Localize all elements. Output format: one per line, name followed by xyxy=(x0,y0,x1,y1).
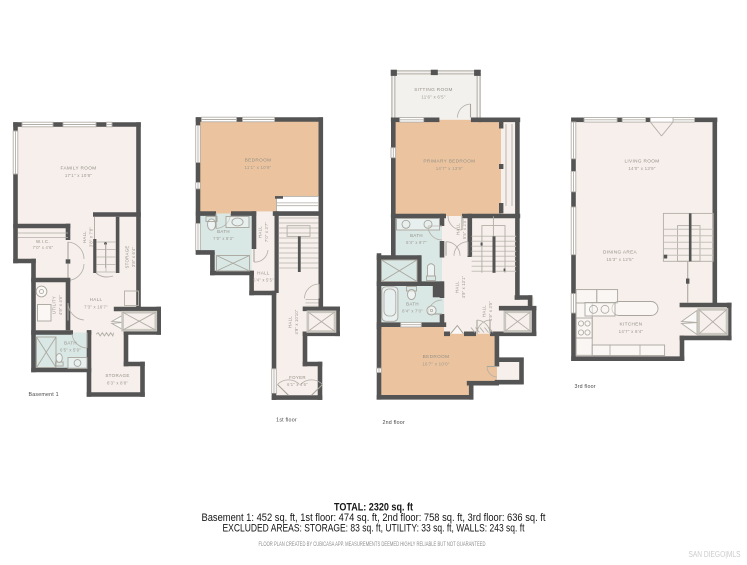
svg-text:BATH: BATH xyxy=(64,341,77,346)
svg-text:16'7" x 10'0": 16'7" x 10'0" xyxy=(422,362,450,367)
svg-text:BEDROOM: BEDROOM xyxy=(423,354,450,359)
svg-text:HALL: HALL xyxy=(90,297,103,302)
svg-text:HALL: HALL xyxy=(258,226,263,238)
svg-text:4'9" x 4'6": 4'9" x 4'6" xyxy=(58,295,63,315)
svg-text:7'0" x 4'6": 7'0" x 4'6" xyxy=(33,245,54,250)
svg-text:8'4" x 7'0": 8'4" x 7'0" xyxy=(402,308,423,313)
svg-text:7'3" x 16'7": 7'3" x 16'7" xyxy=(84,304,108,309)
svg-text:KITCHEN: KITCHEN xyxy=(619,322,642,327)
svg-text:FAMILY ROOM: FAMILY ROOM xyxy=(61,166,97,171)
svg-text:LIVING ROOM: LIVING ROOM xyxy=(624,159,659,164)
svg-text:7'0" x 3'7": 7'0" x 3'7" xyxy=(264,222,269,242)
svg-text:11'1" x 10'9": 11'1" x 10'9" xyxy=(244,165,271,170)
svg-text:4'9" x 10'10": 4'9" x 10'10" xyxy=(294,309,299,334)
svg-text:5'4" x 5'5": 5'4" x 5'5" xyxy=(253,278,274,283)
svg-text:6'5" x 5'9": 6'5" x 5'9" xyxy=(60,348,81,353)
svg-text:W.I.C.: W.I.C. xyxy=(36,239,50,244)
svg-text:Basement 1: Basement 1 xyxy=(29,392,59,398)
svg-text:6'1" x 4'6": 6'1" x 4'6" xyxy=(287,382,308,387)
svg-text:3'8" x 6'4": 3'8" x 6'4" xyxy=(131,247,136,267)
svg-text:SAN DIEGO|MLS: SAN DIEGO|MLS xyxy=(689,550,741,559)
svg-text:14'0" x 13'9": 14'0" x 13'9" xyxy=(628,166,656,171)
svg-text:6'3" x 8'8": 6'3" x 8'8" xyxy=(107,380,128,385)
svg-text:STORAGE: STORAGE xyxy=(105,373,129,378)
svg-text:HALL: HALL xyxy=(455,281,460,293)
svg-text:HALL: HALL xyxy=(288,316,293,328)
svg-text:HALL: HALL xyxy=(257,271,270,276)
svg-text:BEDROOM: BEDROOM xyxy=(245,158,272,163)
svg-text:BATH: BATH xyxy=(406,301,419,306)
svg-text:1st floor: 1st floor xyxy=(276,418,297,424)
svg-text:14'7" x 8'4": 14'7" x 8'4" xyxy=(619,329,644,334)
svg-text:3rd floor: 3rd floor xyxy=(575,384,596,390)
svg-text:HALL: HALL xyxy=(456,223,461,235)
svg-text:15'3" x 12'5": 15'3" x 12'5" xyxy=(606,257,634,262)
svg-text:11'6" x 6'5": 11'6" x 6'5" xyxy=(421,95,446,100)
svg-text:5'5" x 2'0": 5'5" x 2'0" xyxy=(462,219,467,239)
svg-text:PRIMARY BEDROOM: PRIMARY BEDROOM xyxy=(423,159,475,164)
svg-text:4'9" x 3'5": 4'9" x 3'5" xyxy=(488,301,493,321)
svg-text:FOYER: FOYER xyxy=(289,375,306,380)
svg-text:BATH: BATH xyxy=(217,229,230,234)
svg-text:EXCLUDED AREAS: STORAGE: 83 sq: EXCLUDED AREAS: STORAGE: 83 sq. ft, UTIL… xyxy=(223,523,525,535)
svg-text:FLOOR PLAN CREATED BY CUBICASA: FLOOR PLAN CREATED BY CUBICASA APP. MEAS… xyxy=(259,541,486,548)
svg-text:3'8" x 7'8": 3'8" x 7'8" xyxy=(88,227,93,247)
svg-text:HALL: HALL xyxy=(82,231,87,243)
svg-text:DINING AREA: DINING AREA xyxy=(603,250,638,255)
svg-text:4'9" x 13'1": 4'9" x 13'1" xyxy=(461,275,466,298)
svg-text:7'0" x 8'3": 7'0" x 8'3" xyxy=(213,236,234,241)
svg-text:8'4" x 9'7": 8'4" x 9'7" xyxy=(406,240,427,245)
svg-text:BATH: BATH xyxy=(410,233,423,238)
svg-text:14'7" x 13'9": 14'7" x 13'9" xyxy=(436,166,464,171)
svg-text:SITTING ROOM: SITTING ROOM xyxy=(414,87,453,92)
svg-text:UTILITY: UTILITY xyxy=(51,296,56,314)
svg-text:2nd floor: 2nd floor xyxy=(383,420,405,426)
svg-text:STORAGE: STORAGE xyxy=(124,245,129,268)
svg-text:17'1" x 10'8": 17'1" x 10'8" xyxy=(65,173,93,178)
svg-text:HALL: HALL xyxy=(481,305,486,317)
